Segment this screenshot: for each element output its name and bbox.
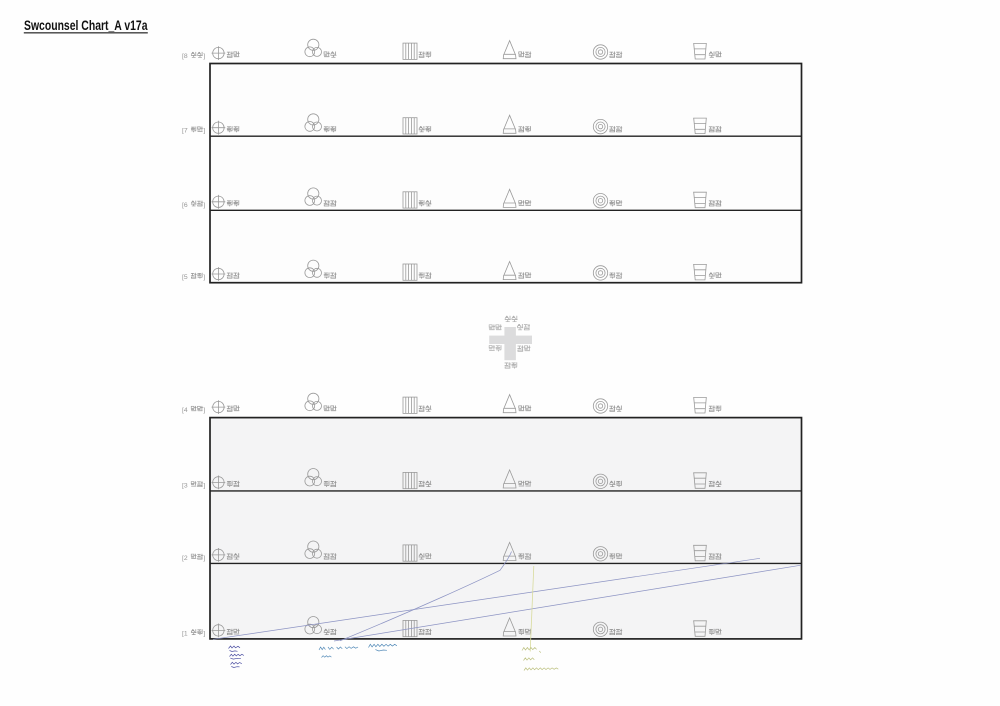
svg-text:]: ] [203,482,205,489]
svg-text:[1: [1 [182,630,188,637]
svg-text:[7: [7 [182,128,188,135]
svg-text:[5: [5 [182,274,188,281]
svg-text:]: ] [203,274,205,281]
svg-text:[8: [8 [182,53,188,60]
svg-text:[6: [6 [182,202,188,209]
svg-text:]: ] [203,53,205,60]
svg-text:]: ] [203,555,205,562]
svg-text:]: ] [203,202,205,209]
svg-text:Swcounsel Chart_A v17a: Swcounsel Chart_A v17a [24,18,148,33]
svg-text:[2: [2 [182,555,188,562]
svg-text:[3: [3 [182,482,188,489]
svg-text:]: ] [203,128,205,135]
svg-text:]: ] [203,407,205,414]
svg-text:]: ] [203,630,205,637]
svg-text:[4: [4 [182,407,188,414]
